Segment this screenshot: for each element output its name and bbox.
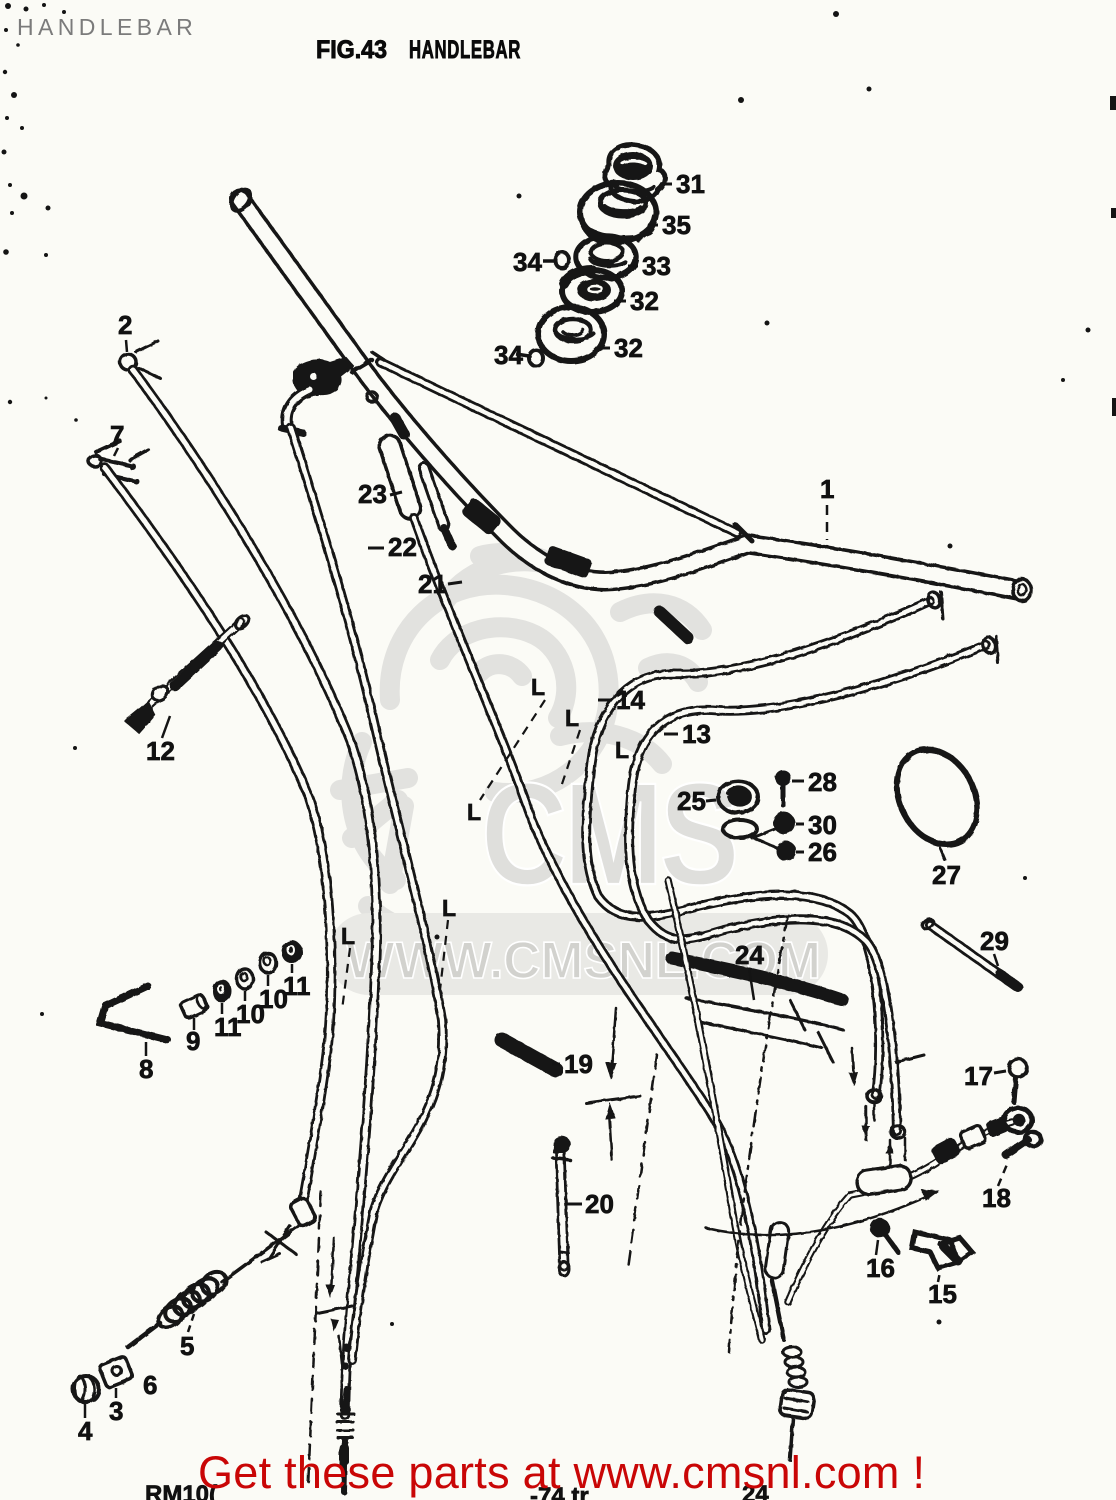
svg-text:4: 4 <box>78 1416 93 1446</box>
svg-text:L: L <box>565 705 579 731</box>
svg-text:18: 18 <box>982 1183 1011 1213</box>
svg-text:28: 28 <box>808 767 837 797</box>
svg-text:L: L <box>467 799 481 825</box>
svg-text:8: 8 <box>139 1054 153 1084</box>
svg-text:14: 14 <box>616 685 645 715</box>
svg-text:11: 11 <box>283 971 311 1001</box>
svg-text:33: 33 <box>642 251 671 281</box>
svg-text:35: 35 <box>662 210 691 240</box>
svg-text:HANDLEBAR: HANDLEBAR <box>409 36 521 64</box>
svg-text:32: 32 <box>630 286 659 316</box>
svg-text:FIG.43: FIG.43 <box>316 36 387 64</box>
svg-text:32: 32 <box>614 333 643 363</box>
svg-text:30: 30 <box>808 810 837 840</box>
svg-text:25: 25 <box>677 786 706 816</box>
svg-text:22: 22 <box>388 532 417 562</box>
svg-text:27: 27 <box>932 860 961 890</box>
svg-text:15: 15 <box>928 1279 957 1309</box>
svg-text:24: 24 <box>735 940 764 970</box>
svg-text:26: 26 <box>808 837 837 867</box>
svg-text:13: 13 <box>682 719 711 749</box>
svg-text:12: 12 <box>146 736 175 766</box>
svg-text:17: 17 <box>964 1061 993 1091</box>
svg-text:23: 23 <box>358 479 387 509</box>
svg-text:19: 19 <box>564 1049 593 1079</box>
svg-text:7: 7 <box>110 420 124 450</box>
svg-text:L: L <box>442 895 456 921</box>
svg-text:20: 20 <box>585 1189 614 1219</box>
svg-text:HANDLEBAR: HANDLEBAR <box>17 14 197 40</box>
svg-text:5: 5 <box>180 1331 194 1361</box>
svg-text:2: 2 <box>118 310 132 340</box>
svg-text:1: 1 <box>820 474 834 504</box>
svg-text:Get these parts at www.cmsnl.c: Get these parts at www.cmsnl.com ! <box>198 1447 925 1498</box>
svg-text:34: 34 <box>513 247 542 277</box>
svg-text:L: L <box>615 737 629 763</box>
svg-text:L: L <box>341 923 355 949</box>
svg-text:29: 29 <box>980 926 1009 956</box>
svg-text:9: 9 <box>186 1026 200 1056</box>
svg-text:6: 6 <box>143 1370 157 1400</box>
svg-text:16: 16 <box>866 1253 895 1283</box>
svg-text:21: 21 <box>418 569 447 599</box>
svg-text:3: 3 <box>109 1396 123 1426</box>
svg-text:L: L <box>531 674 545 700</box>
svg-text:31: 31 <box>676 169 705 199</box>
